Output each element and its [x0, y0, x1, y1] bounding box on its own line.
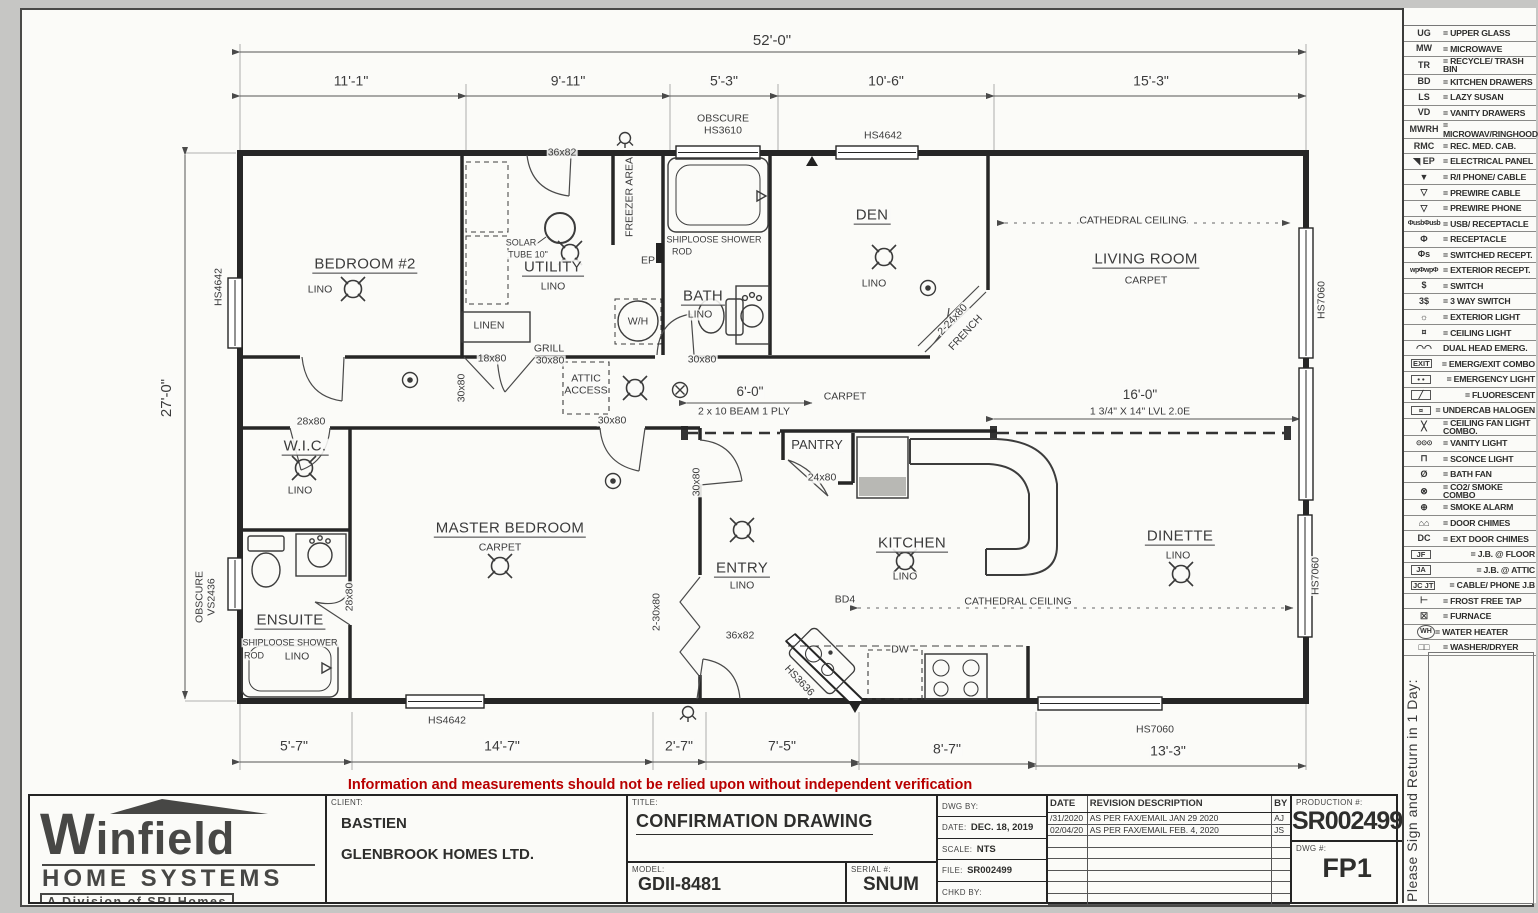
title-block: Winfield HOME SYSTEMS A Division of SRI … [28, 794, 1398, 904]
ensuite-toilet [248, 536, 284, 551]
usb-receptacle-icon: ΦusbΦusb [1405, 220, 1443, 227]
legend-label: = CEILING FAN LIGHT COMBO. [1443, 419, 1535, 436]
junction-box-attic-icon: JA [1411, 565, 1431, 575]
dryer [466, 236, 508, 304]
legend-item: VD= VANITY DRAWERS [1404, 106, 1536, 122]
dwg-number: FP1 [1292, 855, 1402, 882]
water-heater-icon: WH [1417, 625, 1435, 639]
legend-item: ▽= PREWIRE CABLE [1404, 185, 1536, 201]
serial-value: SNUM [863, 874, 936, 896]
legend-label: = FROST FREE TAP [1443, 597, 1521, 605]
dishwasher [868, 650, 922, 699]
legend-label: = EXTERIOR RECEPT. [1443, 266, 1530, 274]
legend-label: = SWITCHED RECEPT. [1443, 251, 1532, 259]
microwave-rangehood-icon: MWRH [1405, 125, 1443, 134]
upper-glass-icon: UG [1405, 29, 1443, 38]
linen-closet [462, 312, 530, 342]
legend-label: = CABLE/ PHONE J.B [1450, 581, 1535, 589]
fixtures [242, 156, 1057, 713]
legend-label: = FLUORESCENT [1465, 391, 1535, 399]
legend-item: • •= EMERGENCY LIGHT [1404, 372, 1536, 388]
undercabinet-halogen-icon: ¤ [1411, 406, 1431, 416]
legend-label: = DOOR CHIMES [1443, 519, 1510, 527]
legend-item: ⊕= SMOKE ALARM [1404, 500, 1536, 516]
legend-label: = SMOKE ALARM [1443, 503, 1513, 511]
legend-item: JA= J.B. @ ATTIC [1404, 563, 1536, 579]
model-value: GDII-8481 [638, 874, 845, 895]
legend-label: = R/I PHONE/ CABLE [1443, 173, 1526, 181]
dwg-no-label: DWG #: [1292, 842, 1402, 853]
production-number: SR002499 [1292, 809, 1402, 834]
legend-item: ⊗= CO2/ SMOKE COMBO [1404, 483, 1536, 501]
revision-row [1048, 894, 1290, 906]
legend-label: = KITCHEN DRAWERS [1443, 78, 1533, 86]
exterior-door-chimes-icon: DC [1405, 534, 1443, 543]
serial-label: SERIAL #: [847, 863, 936, 874]
drawing-info-cell: DWG BY: JSIOPONGCO DATE: DEC. 18, 2019 S… [938, 796, 1048, 902]
revision-row [1048, 859, 1290, 871]
prewire-cable-icon: ▽ [1405, 188, 1443, 197]
ceiling-fan-light-combo-icon: ╳ [1405, 422, 1443, 431]
frost-free-tap-icon: ⊢ [1405, 596, 1443, 605]
client-name: BASTIEN [341, 815, 626, 832]
legend-label: = CO2/ SMOKE COMBO [1443, 483, 1535, 500]
legend-label: = SCONCE LIGHT [1443, 455, 1513, 463]
legend-label: = ELECTRICAL PANEL [1443, 157, 1533, 165]
sign-return-note: Please Sign and Return in 1 Day: [1404, 652, 1420, 902]
legend-label: = SWITCH [1443, 282, 1483, 290]
receptacle-icon: Φ [1405, 235, 1443, 244]
legend-label: = EMERGENCY LIGHT [1447, 375, 1535, 383]
emergency-exit-combo-icon: EXIT [1411, 359, 1432, 369]
legend-item: ⊙⊙⊙= VANITY LIGHT [1404, 436, 1536, 452]
bath-toilet [698, 299, 724, 333]
ceiling-light-icon: ¤ [1405, 328, 1443, 337]
legend-item: ¤= CEILING LIGHT [1404, 325, 1536, 341]
legend-item: ⊓= SCONCE LIGHT [1404, 452, 1536, 468]
exterior-receptacle-icon: wpΦwpΦ [1405, 267, 1443, 274]
legend-item: ☒= FURNACE [1404, 609, 1536, 625]
title-label: TITLE: [628, 796, 936, 807]
legend-label: = 3 WAY SWITCH [1443, 297, 1510, 305]
vanity-drawers-icon: VD [1405, 108, 1443, 117]
legend-item: TR= RECYCLE/ TRASH BIN [1404, 57, 1536, 75]
revision-row [1048, 882, 1290, 894]
bifold-doors [680, 577, 700, 677]
legend-item: DC= EXT DOOR CHIMES [1404, 531, 1536, 547]
legend-label: = MICROWAVE [1443, 45, 1502, 53]
exterior-light-icon: ☼ [1405, 313, 1443, 322]
floorplan-sheet: 52'-0"11'-1"9'-11"5'-3"10'-6"15'-3"27'-0… [0, 0, 1538, 913]
revision-row: /31/2020AS PER FAX/EMAIL JAN 29 2020AJ [1048, 813, 1290, 825]
legend-item: RMC= REC. MED. CAB. [1404, 139, 1536, 155]
co2-smoke-combo-icon: ⊗ [1405, 487, 1443, 496]
legend-item: Ø= BATH FAN [1404, 467, 1536, 483]
fluorescent-light-icon: ╱ [1411, 390, 1431, 400]
legend-label: = FURNACE [1443, 612, 1491, 620]
beam-lines [681, 426, 1291, 440]
lazy-susan-icon: LS [1405, 93, 1443, 102]
sconce-light-icon: ⊓ [1405, 454, 1443, 463]
legend-label: = UNDERCAB HALOGEN [1436, 406, 1535, 414]
legend-item: LS= LAZY SUSAN [1404, 90, 1536, 106]
legend-label: DUAL HEAD EMERG. [1443, 344, 1528, 352]
electrical-panel [656, 243, 664, 263]
switched-receptacle-icon: Φs [1405, 250, 1443, 259]
emergency-light-icon: • • [1411, 375, 1431, 385]
furnace-icon: ☒ [1405, 612, 1443, 621]
scale-label: SCALE: [938, 843, 972, 854]
legend-label: = J.B. @ ATTIC [1476, 566, 1535, 574]
legend-item: 3$= 3 WAY SWITCH [1404, 294, 1536, 310]
legend-item: UG= UPPER GLASS [1404, 26, 1536, 42]
legend-rows: UG= UPPER GLASSMW= MICROWAVETR= RECYCLE/… [1404, 25, 1536, 656]
signature-box[interactable] [1428, 652, 1534, 904]
legend-label: = WATER HEATER [1435, 628, 1508, 636]
bath-fan-icon: Ø [1405, 470, 1443, 479]
water-heater [618, 301, 658, 341]
legend-item: ⊢= FROST FREE TAP [1404, 594, 1536, 610]
legend-item: Φs= SWITCHED RECEPT. [1404, 248, 1536, 264]
dual-head-emergency-light-icon: ◠◠ [1405, 344, 1443, 353]
logo-line3: A Division of SRI Homes [40, 893, 234, 902]
legend-item: $= SWITCH [1404, 279, 1536, 295]
vanity-light-icon: ⊙⊙⊙ [1405, 440, 1443, 447]
roof-icon [110, 799, 268, 814]
revision-row [1048, 871, 1290, 883]
production-label: PRODUCTION #: [1292, 796, 1402, 807]
client-cell: CLIENT: BASTIEN GLENBROOK HOMES LTD. [327, 796, 628, 902]
legend-item: ΦusbΦusb= USB/ RECEPTACLE [1404, 217, 1536, 233]
recycle-trash-bin-icon: TR [1405, 61, 1443, 70]
model-label: MODEL: [628, 863, 845, 874]
legend-item: JC JT= CABLE/ PHONE J.B [1404, 578, 1536, 594]
company-logo: Winfield HOME SYSTEMS A Division of SRI … [30, 796, 327, 902]
prewire-phone-icon: ▽ [1405, 204, 1443, 213]
legend-label: = PREWIRE PHONE [1443, 204, 1521, 212]
legend-item: ╱= FLUORESCENT [1404, 388, 1536, 404]
legend-label: = BATH FAN [1443, 470, 1492, 478]
kitchen-drawers-icon: BD [1405, 77, 1443, 86]
logo-line2: HOME SYSTEMS [42, 864, 315, 892]
angled-window [786, 634, 863, 707]
legend-label: = USB/ RECEPTACLE [1443, 220, 1529, 228]
production-cell: PRODUCTION #: SR002499 DWG #: FP1 [1292, 796, 1402, 902]
legend-item: wpΦwpΦ= EXTERIOR RECEPT. [1404, 263, 1536, 279]
revision-row [1048, 848, 1290, 860]
legend-item: ☼= EXTERIOR LIGHT [1404, 310, 1536, 326]
legend-label: = EMERG/EXIT COMBO [1442, 360, 1535, 368]
kitchen-peninsula [910, 439, 1057, 575]
recessed-medicine-cabinet-icon: RMC [1405, 142, 1443, 151]
legend-label: = EXTERIOR LIGHT [1443, 313, 1520, 321]
legend-label: = REC. MED. CAB. [1443, 142, 1516, 150]
client-company: GLENBROOK HOMES LTD. [341, 846, 626, 863]
date-value: DEC. 18, 2019 [971, 822, 1033, 833]
microwave-icon: MW [1405, 44, 1443, 53]
legend-item: JF= J.B. @ FLOOR [1404, 547, 1536, 563]
smoke-alarm-icon: ⊕ [1405, 503, 1443, 512]
date-label: DATE: [938, 821, 966, 832]
attic-access-hatch [563, 362, 609, 414]
legend-item: ╳= CEILING FAN LIGHT COMBO. [1404, 419, 1536, 437]
legend-label: = PREWIRE CABLE [1443, 189, 1520, 197]
bath-tub [668, 158, 768, 232]
legend-label: = VANITY LIGHT [1443, 439, 1507, 447]
legend-item: ▽= PREWIRE PHONE [1404, 201, 1536, 217]
interior-walls [240, 156, 1028, 699]
cathedral-ceiling-lines [858, 223, 1293, 608]
legend-item: ◠◠DUAL HEAD EMERG. [1404, 341, 1536, 357]
walls [240, 153, 1306, 701]
phone-cable-rough-in-icon: ▼ [1405, 173, 1443, 182]
legend-label: = J.B. @ FLOOR [1471, 550, 1535, 558]
legend-item: ▼= R/I PHONE/ CABLE [1404, 170, 1536, 186]
legend-item: MWRH= MICROWAV/RINGHOOD [1404, 121, 1536, 139]
legend-item: MW= MICROWAVE [1404, 42, 1536, 58]
client-label: CLIENT: [327, 796, 626, 807]
legend-label: = RECYCLE/ TRASH BIN [1443, 57, 1535, 74]
legend-item: ¤= UNDERCAB HALOGEN [1404, 403, 1536, 419]
revision-row [1048, 836, 1290, 848]
solar-tube [545, 213, 575, 243]
ensuite-tub [242, 640, 338, 697]
legend-label: = EXT DOOR CHIMES [1443, 535, 1529, 543]
revision-row: 02/04/20AS PER FAX/EMAIL FEB. 4, 2020JS [1048, 825, 1290, 837]
cable-phone-junction-box-icon: JC JT [1411, 581, 1435, 591]
washer-dryer-icon: □□ [1405, 643, 1443, 652]
switch-icon: $ [1405, 281, 1443, 290]
junction-box-floor-icon: JF [1411, 550, 1431, 560]
door-chimes-icon: ⌂⌂ [1405, 519, 1443, 528]
revision-header: DATEREVISION DESCRIPTIONBY [1048, 796, 1290, 813]
dwg-by-label: DWG BY: [938, 800, 978, 811]
washer [466, 162, 508, 232]
disclaimer-text: Information and measurements should not … [348, 777, 972, 793]
file-value: SR002499 [967, 865, 1012, 876]
legend-item: Φ= RECEPTACLE [1404, 232, 1536, 248]
legend-label: = CEILING LIGHT [1443, 329, 1511, 337]
legend-label: = LAZY SUSAN [1443, 93, 1503, 101]
legend-item: BD= KITCHEN DRAWERS [1404, 75, 1536, 91]
three-way-switch-icon: 3$ [1405, 297, 1443, 306]
logo-name: Winfield [40, 806, 325, 864]
legend-item: WH= WATER HEATER [1404, 625, 1536, 641]
revision-table: DATEREVISION DESCRIPTIONBY/31/2020AS PER… [1048, 796, 1292, 902]
chkd-by-label: CHKD BY: [938, 886, 982, 897]
legend-label: = UPPER GLASS [1443, 29, 1510, 37]
legend-label: = WASHER/DRYER [1443, 643, 1518, 651]
legend-label: = VANITY DRAWERS [1443, 109, 1525, 117]
title-cell: TITLE: CONFIRMATION DRAWING MODEL: GDII-… [628, 796, 938, 902]
legend-item: ⌂⌂= DOOR CHIMES [1404, 516, 1536, 532]
scale-value: NTS [977, 844, 996, 855]
electrical-panel-icon: ◥ EP [1405, 157, 1443, 166]
legend-label: = MICROWAV/RINGHOOD [1443, 121, 1538, 138]
legend-item: ◥ EP= ELECTRICAL PANEL [1404, 154, 1536, 170]
legend-item: EXIT= EMERG/EXIT COMBO [1404, 356, 1536, 372]
drawing-title: CONFIRMATION DRAWING [636, 811, 873, 835]
legend-label: = RECEPTACLE [1443, 235, 1506, 243]
file-label: FILE: [938, 864, 963, 875]
